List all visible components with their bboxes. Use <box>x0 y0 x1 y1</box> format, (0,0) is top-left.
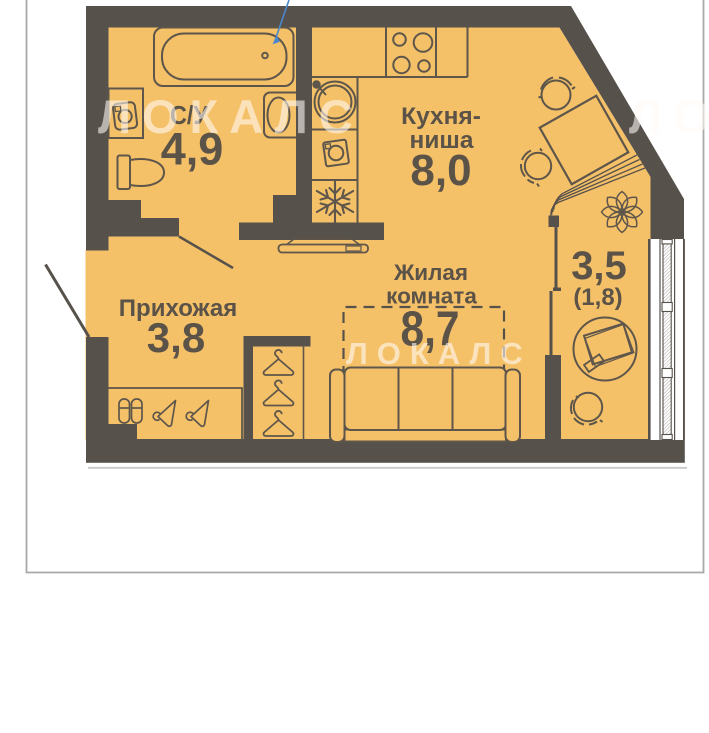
svg-text:3,8: 3,8 <box>147 314 205 361</box>
svg-text:3,5: 3,5 <box>571 244 627 288</box>
svg-text:ЛОКАЛС: ЛОКАЛС <box>346 336 532 371</box>
svg-text:(1,8): (1,8) <box>573 284 622 311</box>
svg-text:Кухня-: Кухня- <box>401 103 481 130</box>
svg-text:8,0: 8,0 <box>410 146 471 195</box>
svg-text:Жилая: Жилая <box>393 260 468 285</box>
svg-text:ЛОКАЛС: ЛОКАЛС <box>98 90 364 143</box>
svg-text:ЛОКАЛС: ЛОКАЛС <box>629 90 709 143</box>
